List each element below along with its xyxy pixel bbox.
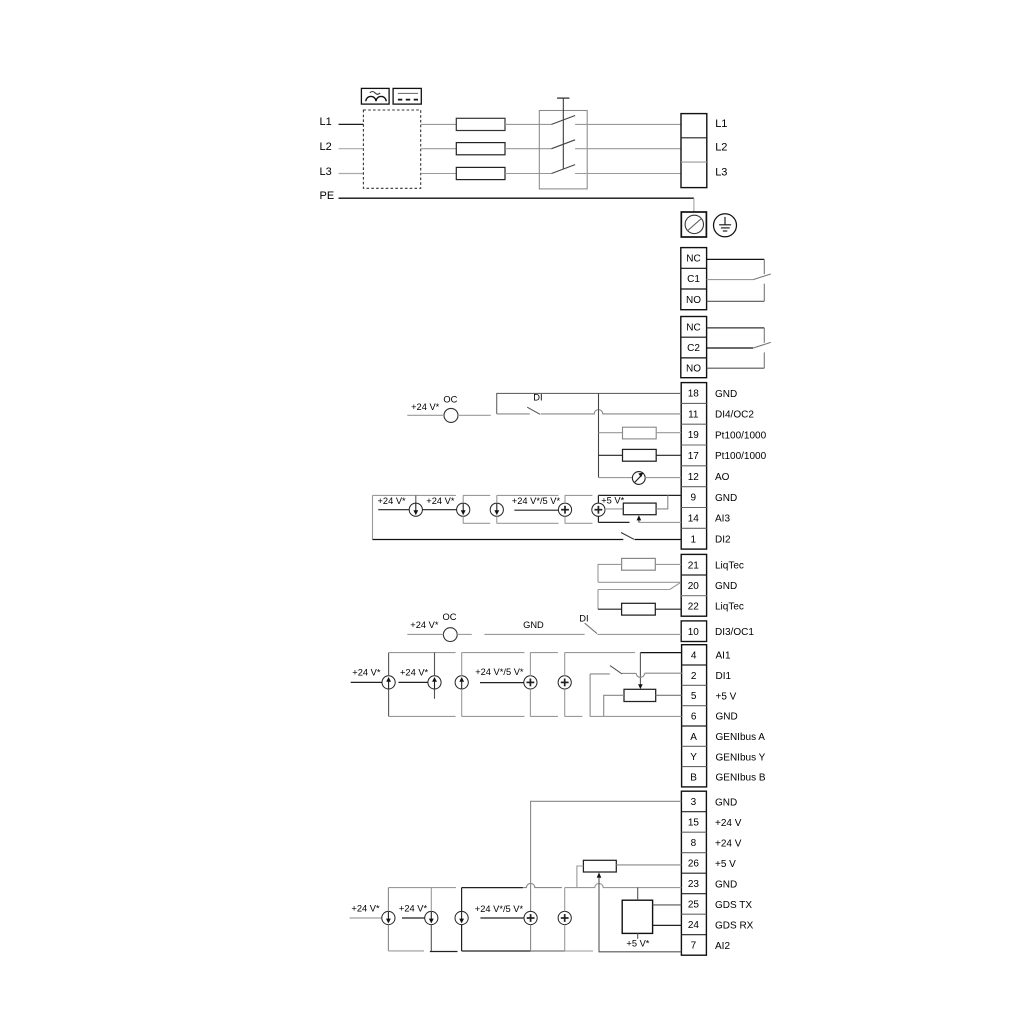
svg-text:+24 V*: +24 V* xyxy=(399,904,428,914)
svg-text:1: 1 xyxy=(691,534,697,545)
svg-text:26: 26 xyxy=(688,859,700,870)
svg-text:DI: DI xyxy=(579,613,588,623)
svg-text:+24 V*: +24 V* xyxy=(352,667,381,677)
svg-text:+5 V*: +5 V* xyxy=(626,938,649,948)
svg-text:OC: OC xyxy=(443,612,457,622)
svg-text:AI1: AI1 xyxy=(716,651,731,662)
svg-text:+24 V*: +24 V* xyxy=(410,620,439,630)
svg-text:NO: NO xyxy=(686,295,701,306)
svg-text:LiqTec: LiqTec xyxy=(715,602,744,613)
svg-text:DI: DI xyxy=(533,393,542,403)
svg-text:NO: NO xyxy=(686,364,701,375)
svg-text:+24 V*: +24 V* xyxy=(426,496,455,506)
svg-text:L2: L2 xyxy=(320,141,332,153)
svg-text:OC: OC xyxy=(443,395,457,405)
svg-text:19: 19 xyxy=(688,430,700,441)
svg-text:6: 6 xyxy=(691,712,697,723)
svg-text:LiqTec: LiqTec xyxy=(715,561,744,572)
svg-text:7: 7 xyxy=(691,941,697,952)
svg-text:PE: PE xyxy=(320,190,335,202)
svg-text:AI3: AI3 xyxy=(715,514,730,525)
svg-text:AO: AO xyxy=(715,472,730,483)
svg-text:+24 V*/5 V*: +24 V*/5 V* xyxy=(475,667,524,677)
svg-text:24: 24 xyxy=(688,920,700,931)
svg-text:9: 9 xyxy=(691,493,697,504)
svg-text:22: 22 xyxy=(688,602,700,613)
svg-text:+24 V*/5 V*: +24 V*/5 V* xyxy=(475,904,524,914)
svg-text:25: 25 xyxy=(688,900,700,911)
svg-text:5: 5 xyxy=(691,691,697,702)
svg-text:L1: L1 xyxy=(320,116,332,128)
svg-text:+5 V*: +5 V* xyxy=(601,496,624,506)
svg-text:L3: L3 xyxy=(715,166,727,178)
svg-text:GND: GND xyxy=(715,493,737,504)
svg-text:C2: C2 xyxy=(687,343,700,354)
svg-text:+5 V: +5 V xyxy=(716,691,737,702)
svg-text:12: 12 xyxy=(688,472,700,483)
svg-text:C1: C1 xyxy=(687,274,700,285)
svg-text:+24 V: +24 V xyxy=(715,838,742,849)
svg-text:11: 11 xyxy=(688,409,699,420)
svg-text:14: 14 xyxy=(688,514,700,525)
svg-text:Y: Y xyxy=(690,752,697,763)
svg-text:NC: NC xyxy=(686,253,700,264)
svg-text:18: 18 xyxy=(688,389,700,400)
svg-text:+24 V*: +24 V* xyxy=(411,402,440,412)
svg-text:GDS TX: GDS TX xyxy=(715,900,752,911)
svg-text:DI3/OC1: DI3/OC1 xyxy=(715,627,754,638)
svg-text:17: 17 xyxy=(688,451,700,462)
svg-text:DI4/OC2: DI4/OC2 xyxy=(715,410,754,421)
svg-text:+24 V*/5 V*: +24 V*/5 V* xyxy=(512,496,561,506)
svg-text:GDS RX: GDS RX xyxy=(715,920,754,931)
svg-text:GND: GND xyxy=(715,389,737,400)
svg-text:GENIbus Y: GENIbus Y xyxy=(716,752,766,763)
svg-text:10: 10 xyxy=(688,627,700,638)
svg-text:+24 V*: +24 V* xyxy=(351,904,380,914)
svg-text:15: 15 xyxy=(688,818,700,829)
svg-text:GND: GND xyxy=(716,712,738,723)
svg-text:20: 20 xyxy=(688,581,700,592)
svg-text:A: A xyxy=(690,732,697,743)
svg-text:4: 4 xyxy=(691,651,697,662)
svg-text:GND: GND xyxy=(715,797,737,808)
svg-text:L2: L2 xyxy=(715,142,727,154)
svg-text:21: 21 xyxy=(688,560,700,571)
svg-text:2: 2 xyxy=(691,671,697,682)
svg-text:GND: GND xyxy=(715,879,737,890)
svg-text:+24 V*: +24 V* xyxy=(400,667,429,677)
svg-text:GENIbus A: GENIbus A xyxy=(716,732,766,743)
svg-text:NC: NC xyxy=(686,322,700,333)
svg-text:B: B xyxy=(690,772,697,783)
svg-text:+24 V*: +24 V* xyxy=(378,496,407,506)
svg-text:AI2: AI2 xyxy=(715,941,730,952)
svg-text:GENIbus B: GENIbus B xyxy=(716,773,766,784)
svg-text:Pt100/1000: Pt100/1000 xyxy=(715,430,767,441)
svg-text:+5 V: +5 V xyxy=(715,859,736,870)
svg-text:23: 23 xyxy=(688,879,700,890)
svg-text:L1: L1 xyxy=(715,118,727,130)
svg-text:8: 8 xyxy=(691,838,697,849)
svg-text:L3: L3 xyxy=(320,166,332,178)
svg-text:GND: GND xyxy=(715,581,737,592)
svg-text:DI2: DI2 xyxy=(715,534,731,545)
svg-text:GND: GND xyxy=(523,620,544,630)
svg-text:DI1: DI1 xyxy=(716,671,732,682)
svg-text:+24 V: +24 V xyxy=(715,818,742,829)
svg-text:Pt100/1000: Pt100/1000 xyxy=(715,451,767,462)
svg-text:3: 3 xyxy=(691,797,697,808)
